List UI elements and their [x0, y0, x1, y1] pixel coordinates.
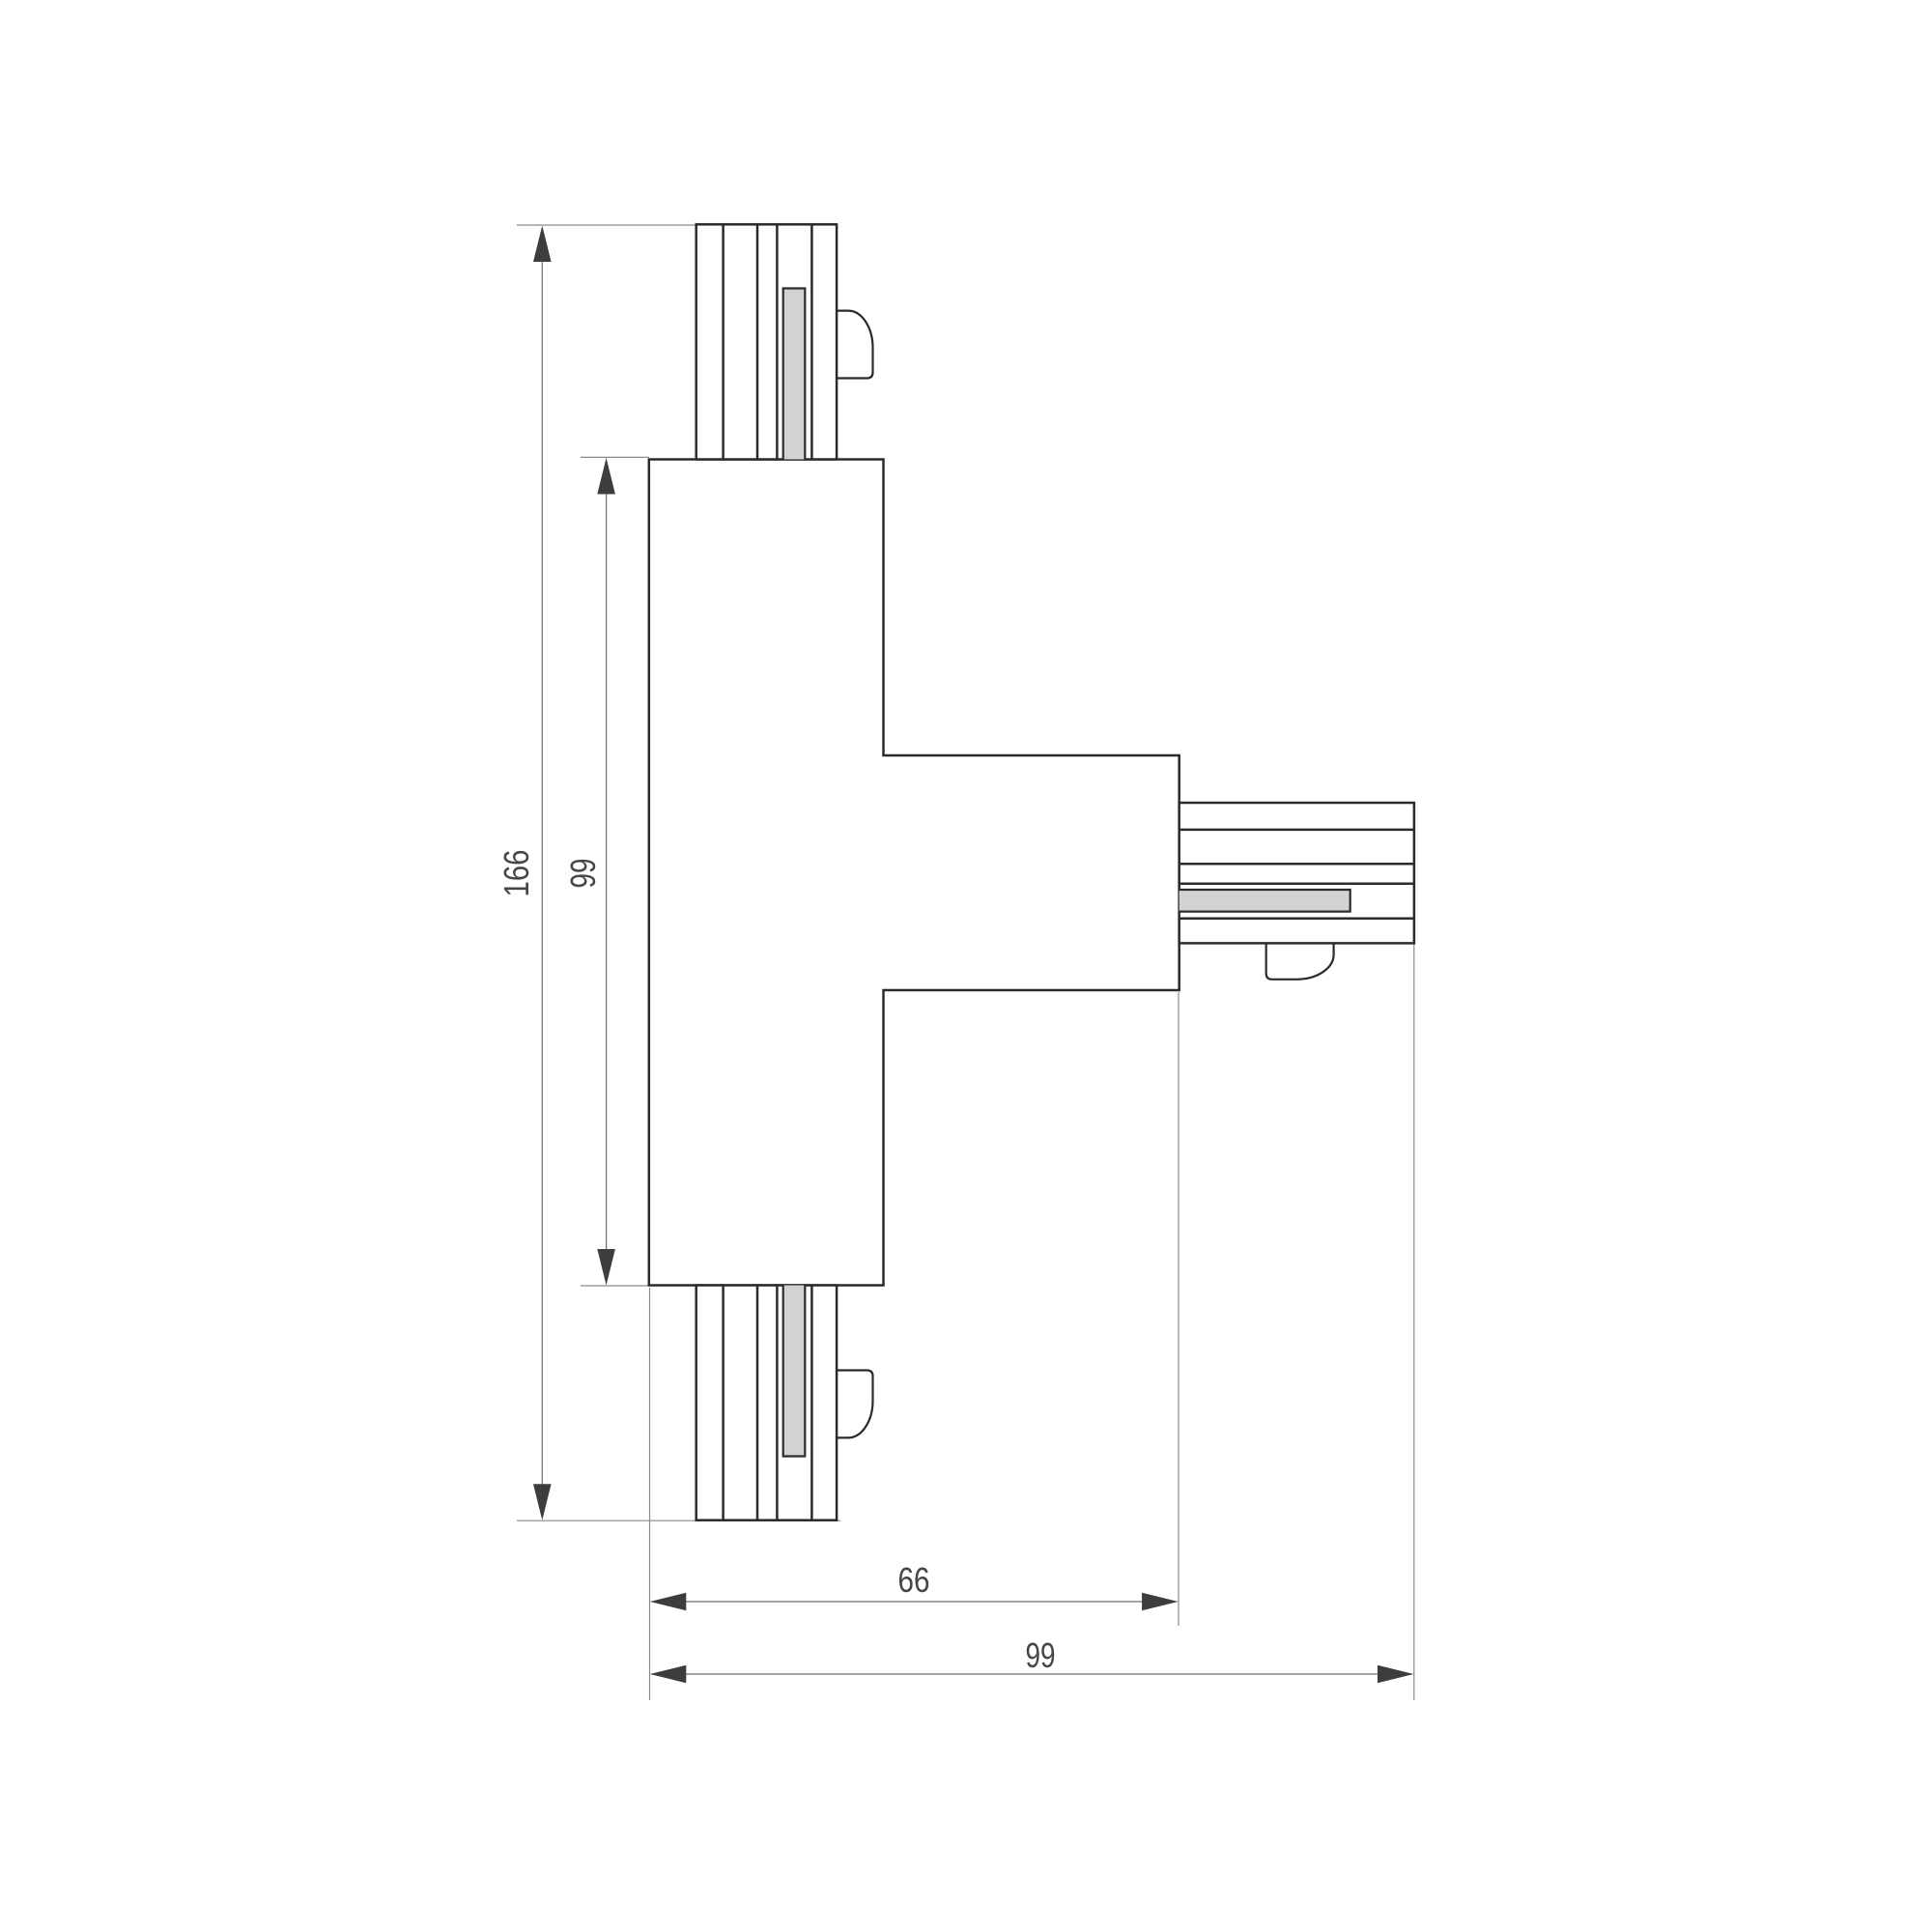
- svg-text:99: 99: [1026, 1635, 1056, 1675]
- svg-text:66: 66: [898, 1560, 930, 1600]
- svg-text:166: 166: [497, 850, 536, 897]
- svg-text:99: 99: [563, 859, 603, 889]
